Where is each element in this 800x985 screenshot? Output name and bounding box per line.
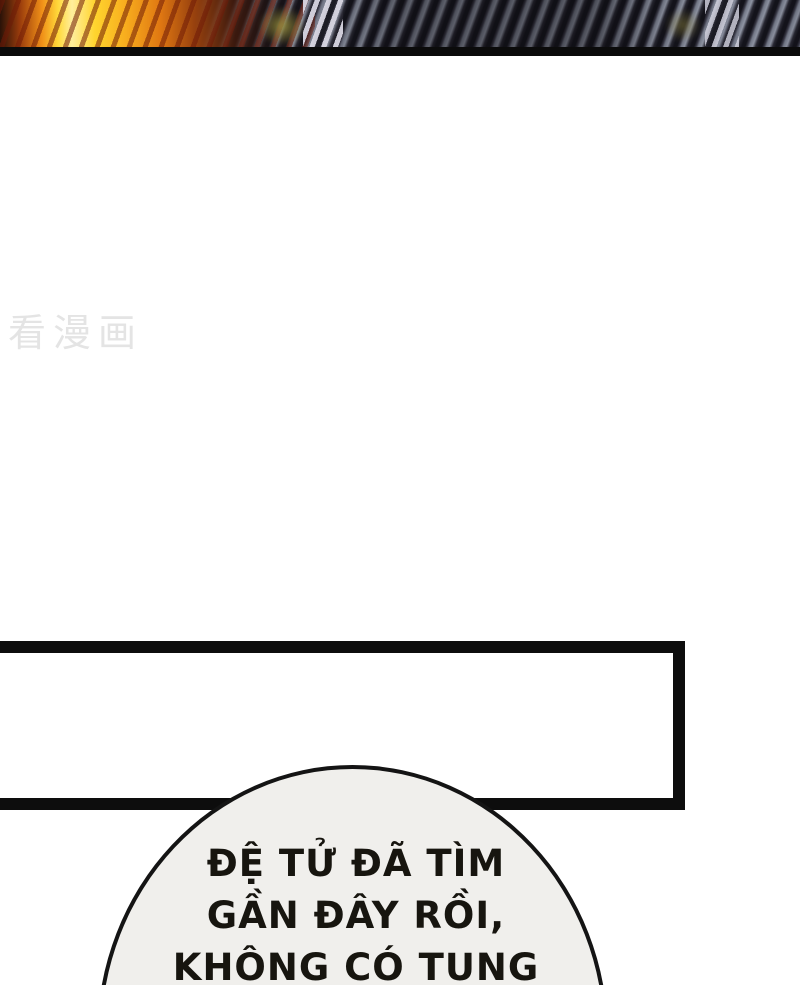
panel-bottom-black-bar xyxy=(0,47,800,56)
bubble-line-1: ĐỆ TỬ ĐÃ TÌM xyxy=(96,838,616,890)
bubble-line-2: GẦN ĐÂY RỒI, xyxy=(96,890,616,942)
dim-glow-left xyxy=(258,6,306,46)
speech-bubble-text: ĐỆ TỬ ĐÃ TÌM GẦN ĐÂY RỒI, KHÔNG CÓ TUNG xyxy=(96,838,616,985)
comic-page: 看漫画 ĐỆ TỬ ĐÃ TÌM GẦN ĐÂY RỒI, KHÔNG CÓ T… xyxy=(0,0,800,985)
bubble-line-3: KHÔNG CÓ TUNG xyxy=(96,942,616,985)
comic-panel-top-strip xyxy=(0,0,800,56)
site-watermark: 看漫画 xyxy=(8,311,143,355)
dim-glow-right xyxy=(664,8,702,42)
